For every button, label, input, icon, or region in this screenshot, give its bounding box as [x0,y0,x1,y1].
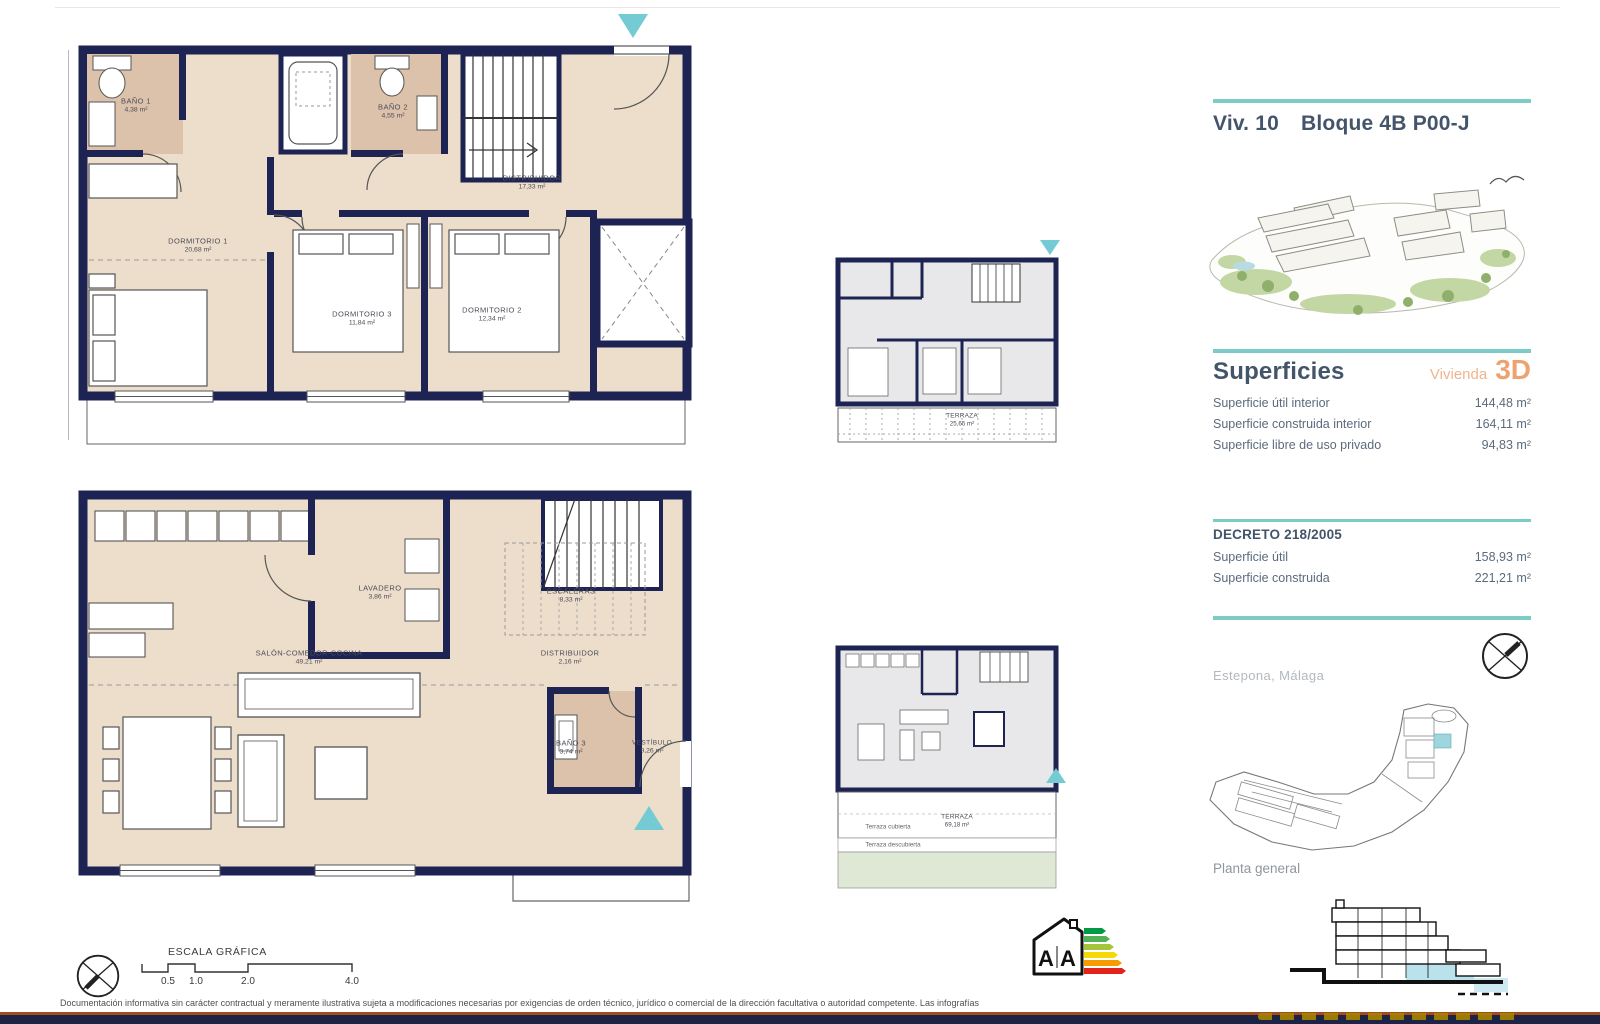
mini-bath [974,712,1004,746]
terrace-label-key-lower: TERRAZA 69,18 m² [941,814,973,829]
decreto-section: DECRETO 218/2005 Superficie útil158,93 m… [1213,527,1531,589]
terrace-label-key-upper: TERRAZA 25,65 m² [946,413,978,428]
teal-rule-bottom [1213,616,1531,620]
teal-rule-superficies [1213,349,1531,353]
shaft-hatch [597,222,689,344]
energy-letter-1: A [1038,946,1054,971]
terrace-covered-label: Terraza cubierta [865,824,910,831]
energy-chimney [1070,920,1077,928]
room-label-dormitorio1: DORMITORIO 120,68 m² [168,237,228,254]
scale-tick-05: 0.5 [161,976,175,987]
site-plan-caption: Planta general [1213,861,1300,876]
sofa-long [238,673,420,717]
room-label-bano3: BAÑO 33,74 m² [556,739,586,756]
aerial-sketch [1198,164,1538,330]
coffee-table [315,747,367,799]
floor-plan-lower [75,485,695,910]
energy-rating-icon: A A [1026,910,1136,986]
room-label-bano1: BAÑO 14,38 m² [121,97,151,114]
energy-bar-1 [1084,928,1106,934]
decreto-row: Superficie construida221,21 m² [1213,568,1531,589]
entry-marker-key-lower [1046,768,1066,783]
mini-sofa [900,710,948,724]
closet [430,224,442,288]
entry-marker-lower [634,806,664,830]
closet [407,224,419,288]
block-id: Bloque 4B P00-J [1301,112,1470,136]
teal-rule-decreto [1213,519,1531,522]
entry-marker-key-upper [1040,240,1060,255]
scale-bar-title: ESCALA GRÁFICA [168,946,267,958]
upper-windows [115,391,569,402]
room-label-distribuidor-upper: DISTRIBUIDOR17,33 m² [503,174,562,191]
energy-bar-5 [1084,960,1122,966]
stairs-upper [463,54,559,180]
bathtub [281,54,345,152]
upper-terrace-outline [87,398,685,444]
superficies-header: Superficies Vivienda3D [1213,354,1531,386]
partial-logo [1258,1013,1520,1020]
mini-garden [838,852,1056,888]
room-label-vestibulo: VESTÍBULO9,26 m² [632,740,672,755]
superficies-rows: Superficie útil interior144,48 m² Superf… [1213,393,1531,456]
scale-tick-20: 2.0 [241,976,255,987]
pool [1233,262,1255,271]
scale-tick-10: 1.0 [189,976,203,987]
unit-id: Viv. 10 [1213,112,1279,136]
building-section-sketch [1278,890,1513,1012]
room-label-escaleras: ESCALERAS8,33 m² [547,587,596,604]
superficies-row: Superficie útil interior144,48 m² [1213,393,1531,414]
badge-3d: 3D [1495,354,1531,385]
mini-dining [858,724,884,760]
energy-bar-2 [1084,936,1110,942]
room-label-bano2: BAÑO 24,55 m² [378,103,408,120]
room-label-lavadero: LAVADERO3,86 m² [359,584,402,601]
plan-sheet: { "header": { "unit": "Viv. 10", "block"… [0,0,1600,1024]
decreto-row: Superficie útil158,93 m² [1213,547,1531,568]
superficies-row: Superficie construida interior164,11 m² [1213,414,1531,435]
energy-letter-2: A [1060,946,1076,971]
key-plan-lower [822,634,1062,896]
section-floors [1332,900,1500,976]
energy-bar-4 [1084,952,1118,958]
compass-icon-bottom [74,952,122,1000]
superficies-section: Superficies Vivienda3D Superficie útil i… [1213,354,1531,456]
decreto-heading: DECRETO 218/2005 [1213,527,1531,542]
room-label-salon: SALÓN-COMEDOR-COCINA49,21 m² [256,649,363,666]
vivienda-tag: Vivienda [1430,366,1487,383]
energy-bar-6 [1084,968,1126,974]
entry-marker-upper [618,14,648,38]
location-city: Estepona, Málaga [1213,668,1324,683]
energy-bar-3 [1084,944,1114,950]
bird-sketch [1490,176,1524,184]
superficies-row: Superficie libre de uso privado94,83 m² [1213,435,1531,456]
superficies-tags: Vivienda3D [1430,354,1531,386]
compass-icon [1479,630,1531,682]
highlighted-unit [1434,734,1451,748]
scale-tick-40: 4.0 [345,976,359,987]
disclaimer-line-1: Documentación informativa sin carácter c… [60,997,1008,1010]
room-label-dormitorio3: DORMITORIO 311,84 m² [332,310,392,327]
terrace-open-label: Terraza descubierta [865,842,920,849]
page-title: Viv. 10 Bloque 4B P00-J [1213,112,1470,136]
key-plan-upper [822,248,1062,448]
teal-rule-top [1213,99,1531,103]
superficies-heading: Superficies [1213,358,1345,386]
page-edge-line [55,7,1560,8]
room-label-dormitorio2: DORMITORIO 212,34 m² [462,306,522,323]
site-plan-sketch [1192,682,1532,868]
plan-side-cut-line [68,50,69,440]
dining-table [123,717,211,829]
room-label-distribuidor-lower: DISTRIBUIDOR2,16 m² [541,649,600,666]
